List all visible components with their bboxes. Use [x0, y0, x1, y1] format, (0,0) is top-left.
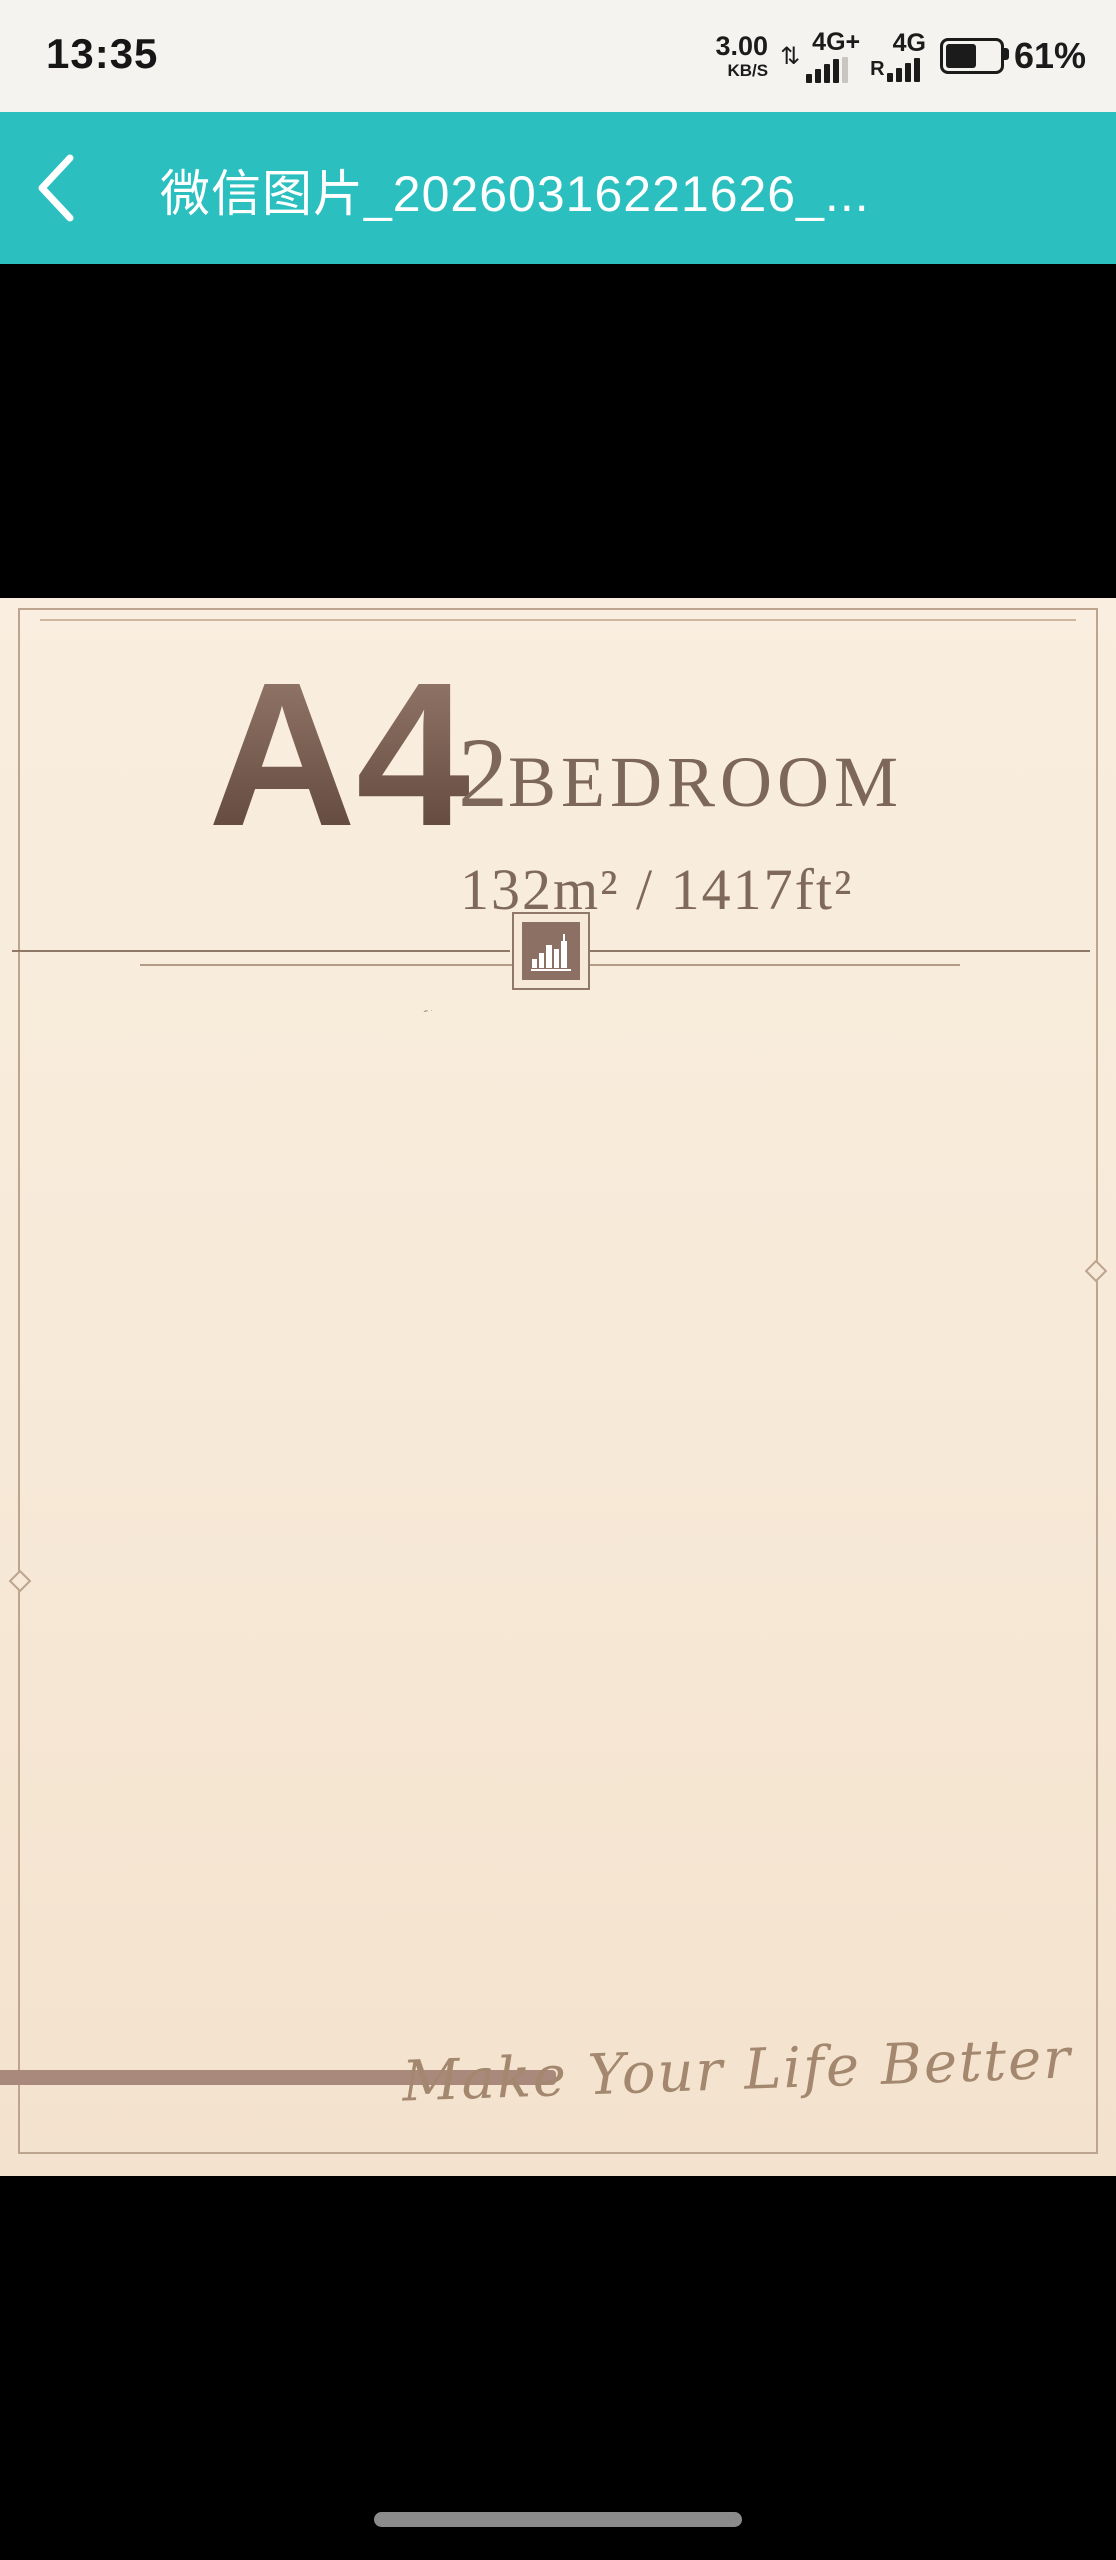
- dim-bottom-1700: 1700: [421, 1010, 449, 1015]
- divider-line: [140, 964, 512, 966]
- header-bar: 微信图片_20260316221626_...: [0, 112, 1116, 264]
- roaming-label: R: [870, 58, 884, 81]
- sim2-network-label: 4G: [893, 31, 926, 56]
- developer-logo: [512, 912, 590, 990]
- sim1-network-label: 4G+: [812, 30, 860, 55]
- bedroom-count: 2: [458, 717, 508, 828]
- bedroom-label: BEDROOM: [508, 742, 903, 822]
- sim2-signal: R 4G: [870, 31, 926, 82]
- sim1-signal: 4G+: [806, 30, 860, 83]
- battery-percent: 61%: [1014, 35, 1086, 77]
- image-filename-title: 微信图片_20260316221626_...: [160, 154, 1060, 226]
- signal-bars-icon: [887, 58, 920, 82]
- network-speed-value: 3.00: [716, 33, 769, 60]
- clock: 13:35: [46, 30, 158, 78]
- home-indicator[interactable]: [374, 2512, 742, 2527]
- floor-plan: 1700 3800 3000 Bathroom Secondary Bedroo…: [0, 1010, 1116, 2040]
- network-speed-unit: KB/S: [727, 62, 768, 79]
- updown-arrows-icon: ⇅: [780, 42, 800, 71]
- network-speed: 3.00 KB/S: [716, 33, 769, 79]
- divider-line: [588, 964, 960, 966]
- dimension-bottom: 1700 3800 3000: [393, 1010, 711, 1018]
- status-bar: 13:35 3.00 KB/S ⇅ 4G+ R 4G: [0, 0, 1116, 112]
- bedroom-type: 2BEDROOM: [458, 723, 903, 824]
- lower-wing: 1700 3800 3000 Bathroom Secondary Bedroo…: [363, 1010, 748, 1018]
- phone-screen: 13:35 3.00 KB/S ⇅ 4G+ R 4G: [0, 0, 1116, 2560]
- floorplan-image[interactable]: A4 2BEDROOM 132m² / 1417ft²: [0, 598, 1116, 2176]
- signal-bars-icon: [806, 57, 848, 83]
- status-icons: 3.00 KB/S ⇅ 4G+ R 4G: [716, 0, 1087, 112]
- divider-line: [588, 950, 1090, 952]
- building-skyline-icon: [522, 922, 580, 980]
- unit-code: A4: [208, 658, 470, 853]
- battery-icon: [940, 38, 1004, 74]
- poster-frame-inner-line: [40, 619, 1076, 621]
- back-button[interactable]: [26, 150, 86, 226]
- chevron-left-icon: [42, 158, 70, 218]
- divider-line: [12, 950, 510, 952]
